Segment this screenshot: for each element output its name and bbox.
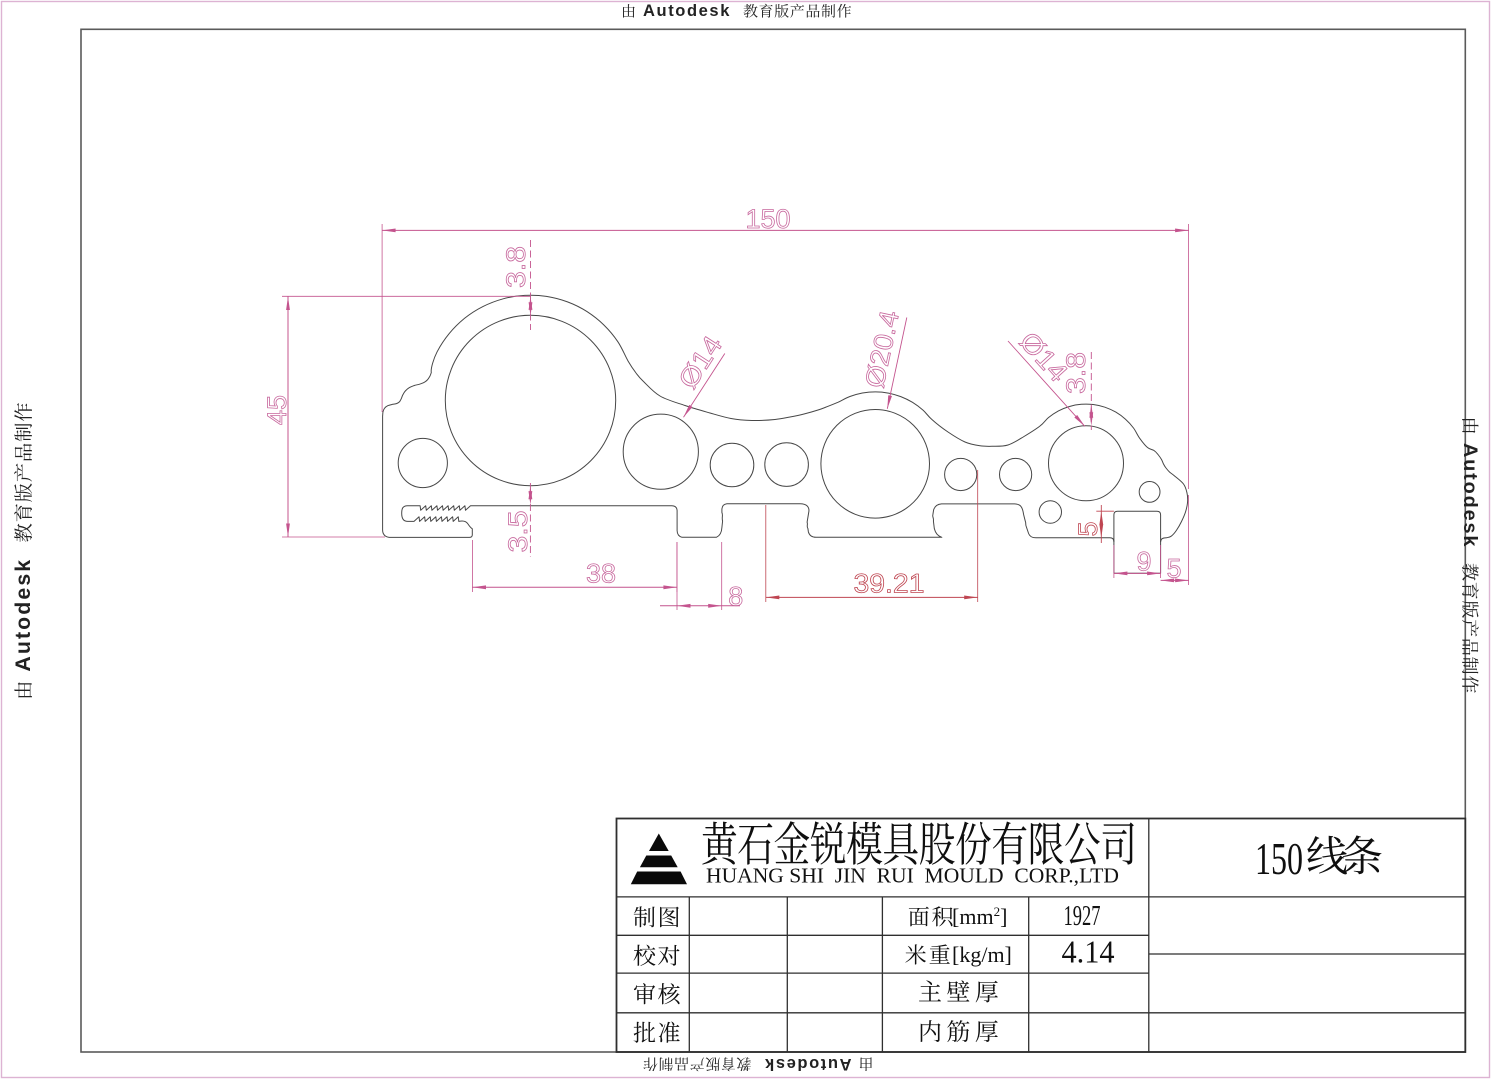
svg-text:5: 5 — [1166, 554, 1181, 584]
svg-text:45: 45 — [262, 395, 292, 425]
svg-text:3.8: 3.8 — [1061, 352, 1091, 394]
svg-text:[kg/m]: [kg/m] — [952, 942, 1012, 967]
svg-text:3.5: 3.5 — [503, 511, 533, 553]
svg-text:1927: 1927 — [1064, 901, 1101, 932]
svg-text:8: 8 — [728, 582, 743, 612]
svg-text:4.14: 4.14 — [1062, 934, 1115, 970]
svg-text:9: 9 — [1136, 547, 1151, 577]
svg-text:39.21: 39.21 — [854, 569, 925, 599]
svg-text:3.8: 3.8 — [501, 246, 531, 288]
svg-text:5: 5 — [1073, 521, 1103, 536]
svg-text:[mm2]: [mm2] — [952, 904, 1007, 929]
svg-text:Ø20.4: Ø20.4 — [859, 308, 905, 391]
svg-text:HUANG SHI JIN RUI MOULD CO: HUANG SHI JIN RUI MOULD CORP.,LTD — [706, 864, 1119, 888]
svg-text:Autodesk: Autodesk — [643, 2, 731, 20]
svg-text:Autodesk: Autodesk — [1459, 443, 1481, 548]
svg-text:Autodesk: Autodesk — [11, 558, 35, 672]
svg-text:150: 150 — [745, 204, 790, 234]
svg-text:150: 150 — [1255, 833, 1303, 884]
svg-text:Ø14: Ø14 — [673, 330, 729, 393]
svg-text:38: 38 — [586, 559, 616, 589]
svg-text:Autodesk: Autodesk — [764, 1055, 852, 1073]
